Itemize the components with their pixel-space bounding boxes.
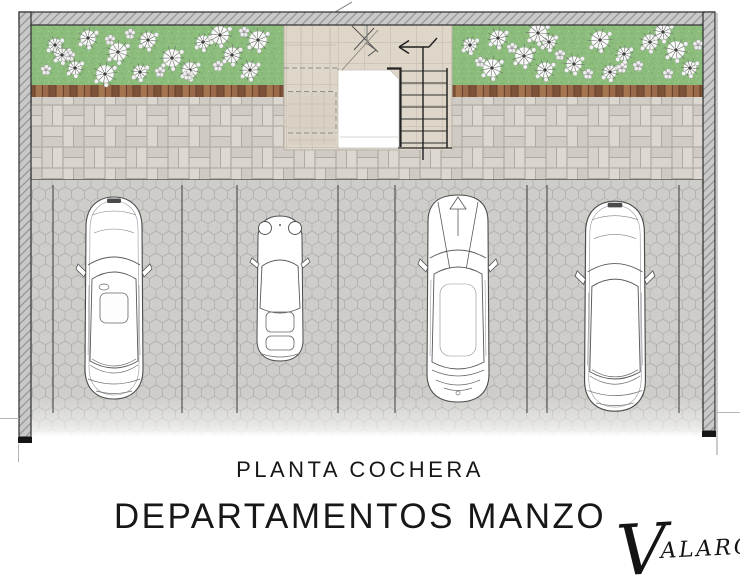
car-stall-4-sedan [575, 201, 655, 411]
left-wall-cap [18, 437, 32, 443]
entry-stair-block [284, 2, 452, 160]
top-wall [19, 12, 714, 25]
right-wall [703, 12, 715, 431]
car-stall-1-sedan [76, 197, 152, 399]
architect-signature: V ALARQ. [614, 503, 740, 585]
car-stall-3-suv [418, 195, 498, 402]
left-wall [19, 12, 31, 437]
signature-rest: ALARQ. [658, 534, 740, 564]
stair-landing [338, 70, 399, 148]
car-stall-2-compact [250, 216, 310, 361]
timber-edge-right [452, 85, 703, 97]
right-wall-cap [702, 431, 716, 437]
timber-edge-left [31, 85, 284, 97]
garage-floor-plan: PLANTA COCHERA DEPARTAMENTOS MANZO V ALA… [0, 0, 740, 585]
plan-subtitle: PLANTA COCHERA [236, 457, 484, 482]
plan-sheet: PLANTA COCHERA DEPARTAMENTOS MANZO V ALA… [0, 0, 740, 585]
plan-title: DEPARTAMENTOS MANZO [114, 497, 606, 536]
